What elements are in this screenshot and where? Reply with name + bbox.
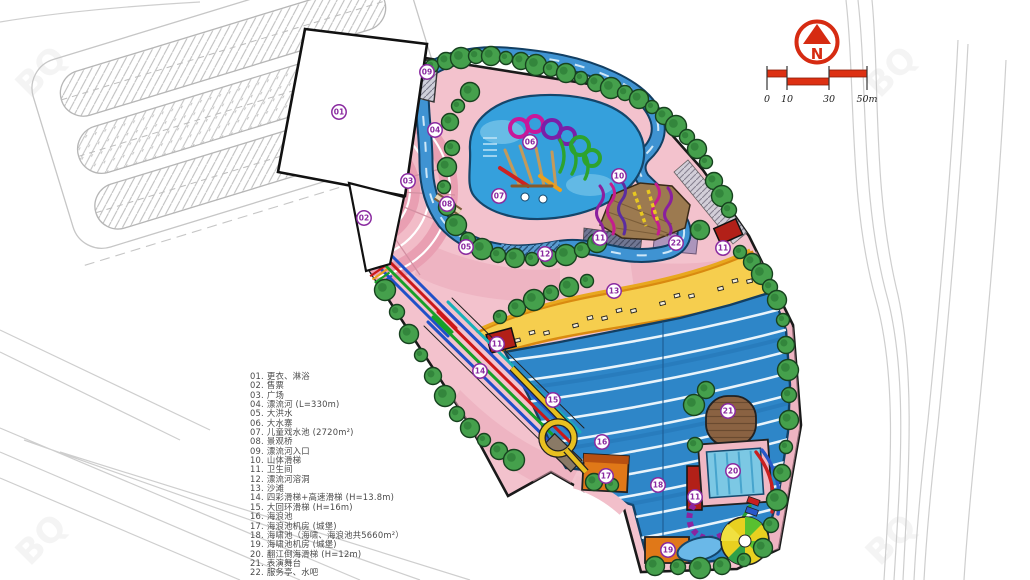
svg-text:07: 07 (494, 192, 504, 201)
svg-text:20: 20 (728, 467, 738, 476)
legend-item-number: 19. (250, 539, 264, 549)
svg-text:13: 13 (609, 287, 619, 296)
plan-label-13: 13 (607, 284, 621, 298)
plan-label-08: 08 (440, 197, 454, 211)
svg-text:14: 14 (475, 367, 485, 376)
legend-list: 01.更衣、淋浴02.售票03.广场04.漂流河 (L=330m)05.大洪水0… (250, 372, 460, 578)
plan-label-07: 07 (492, 189, 506, 203)
svg-text:22: 22 (671, 239, 681, 248)
svg-text:N: N (811, 45, 824, 63)
legend-item-number: 14. (250, 492, 264, 502)
plan-label-19: 19 (661, 543, 675, 557)
plan-label-15: 15 (546, 393, 560, 407)
svg-text:11: 11 (595, 234, 605, 243)
plan-label-22: 22 (669, 236, 683, 250)
svg-text:16: 16 (597, 438, 607, 447)
svg-text:02: 02 (359, 214, 369, 223)
plan-label-11: 11 (490, 337, 504, 351)
scale-tick-label: 10 (781, 94, 793, 105)
svg-text:06: 06 (525, 138, 535, 147)
plan-label-04: 04 (428, 123, 442, 137)
plan-label-02: 02 (357, 211, 371, 225)
plan-label-21: 21 (721, 404, 735, 418)
svg-text:19: 19 (663, 546, 673, 555)
legend-item-number: 17. (250, 521, 264, 531)
scale-tick-label: 50m (856, 94, 877, 105)
svg-text:21: 21 (723, 407, 733, 416)
master-plan-drawing: 0102030405060708091011111111121314151617… (0, 0, 1030, 580)
svg-text:11: 11 (718, 244, 728, 253)
north-arrow-icon: N (797, 22, 838, 64)
legend-item-number: 22. (250, 567, 264, 577)
svg-text:15: 15 (548, 396, 558, 405)
plan-label-01: 01 (332, 105, 346, 119)
svg-text:18: 18 (653, 481, 663, 490)
plan-label-06: 06 (523, 135, 537, 149)
plan-label-16: 16 (595, 435, 609, 449)
svg-text:17: 17 (601, 472, 611, 481)
plan-label-10: 10 (612, 169, 626, 183)
plan-label-03: 03 (401, 174, 415, 188)
plan-label-11: 11 (716, 241, 730, 255)
plan-label-11: 11 (688, 490, 702, 504)
svg-text:12: 12 (540, 250, 550, 259)
legend-item-number: 11. (250, 464, 264, 474)
svg-text:05: 05 (461, 243, 471, 252)
svg-text:11: 11 (690, 493, 700, 502)
plan-label-09: 09 (420, 65, 434, 79)
legend-item: 22.服务亭、水吧 (250, 568, 460, 577)
svg-text:01: 01 (334, 108, 344, 117)
svg-text:09: 09 (422, 68, 432, 77)
legend-item-text: 服务亭、水吧 (267, 567, 318, 577)
legend-item-number: 08. (250, 436, 264, 446)
plan-label-18: 18 (651, 478, 665, 492)
svg-text:08: 08 (442, 200, 452, 209)
svg-text:04: 04 (430, 126, 440, 135)
scale-tick-label: 0 (764, 94, 770, 105)
svg-text:03: 03 (403, 177, 413, 186)
plan-label-14: 14 (473, 364, 487, 378)
scale-tick-label: 30 (823, 94, 835, 105)
plan-label-17: 17 (599, 469, 613, 483)
plan-label-20: 20 (726, 464, 740, 478)
plan-label-05: 05 (459, 240, 473, 254)
legend-item-number: 16. (250, 511, 264, 521)
legend-item-number: 05. (250, 408, 264, 418)
building-01-changing-shower (278, 29, 427, 196)
plan-label-12: 12 (538, 247, 552, 261)
svg-text:10: 10 (614, 172, 624, 181)
legend-item-number: 02. (250, 380, 264, 390)
scale-bar: 0103050m (764, 66, 878, 105)
site-plan-canvas: BQ BQ BQ BQ (0, 0, 1030, 580)
plan-label-11: 11 (593, 231, 607, 245)
svg-text:11: 11 (492, 340, 502, 349)
